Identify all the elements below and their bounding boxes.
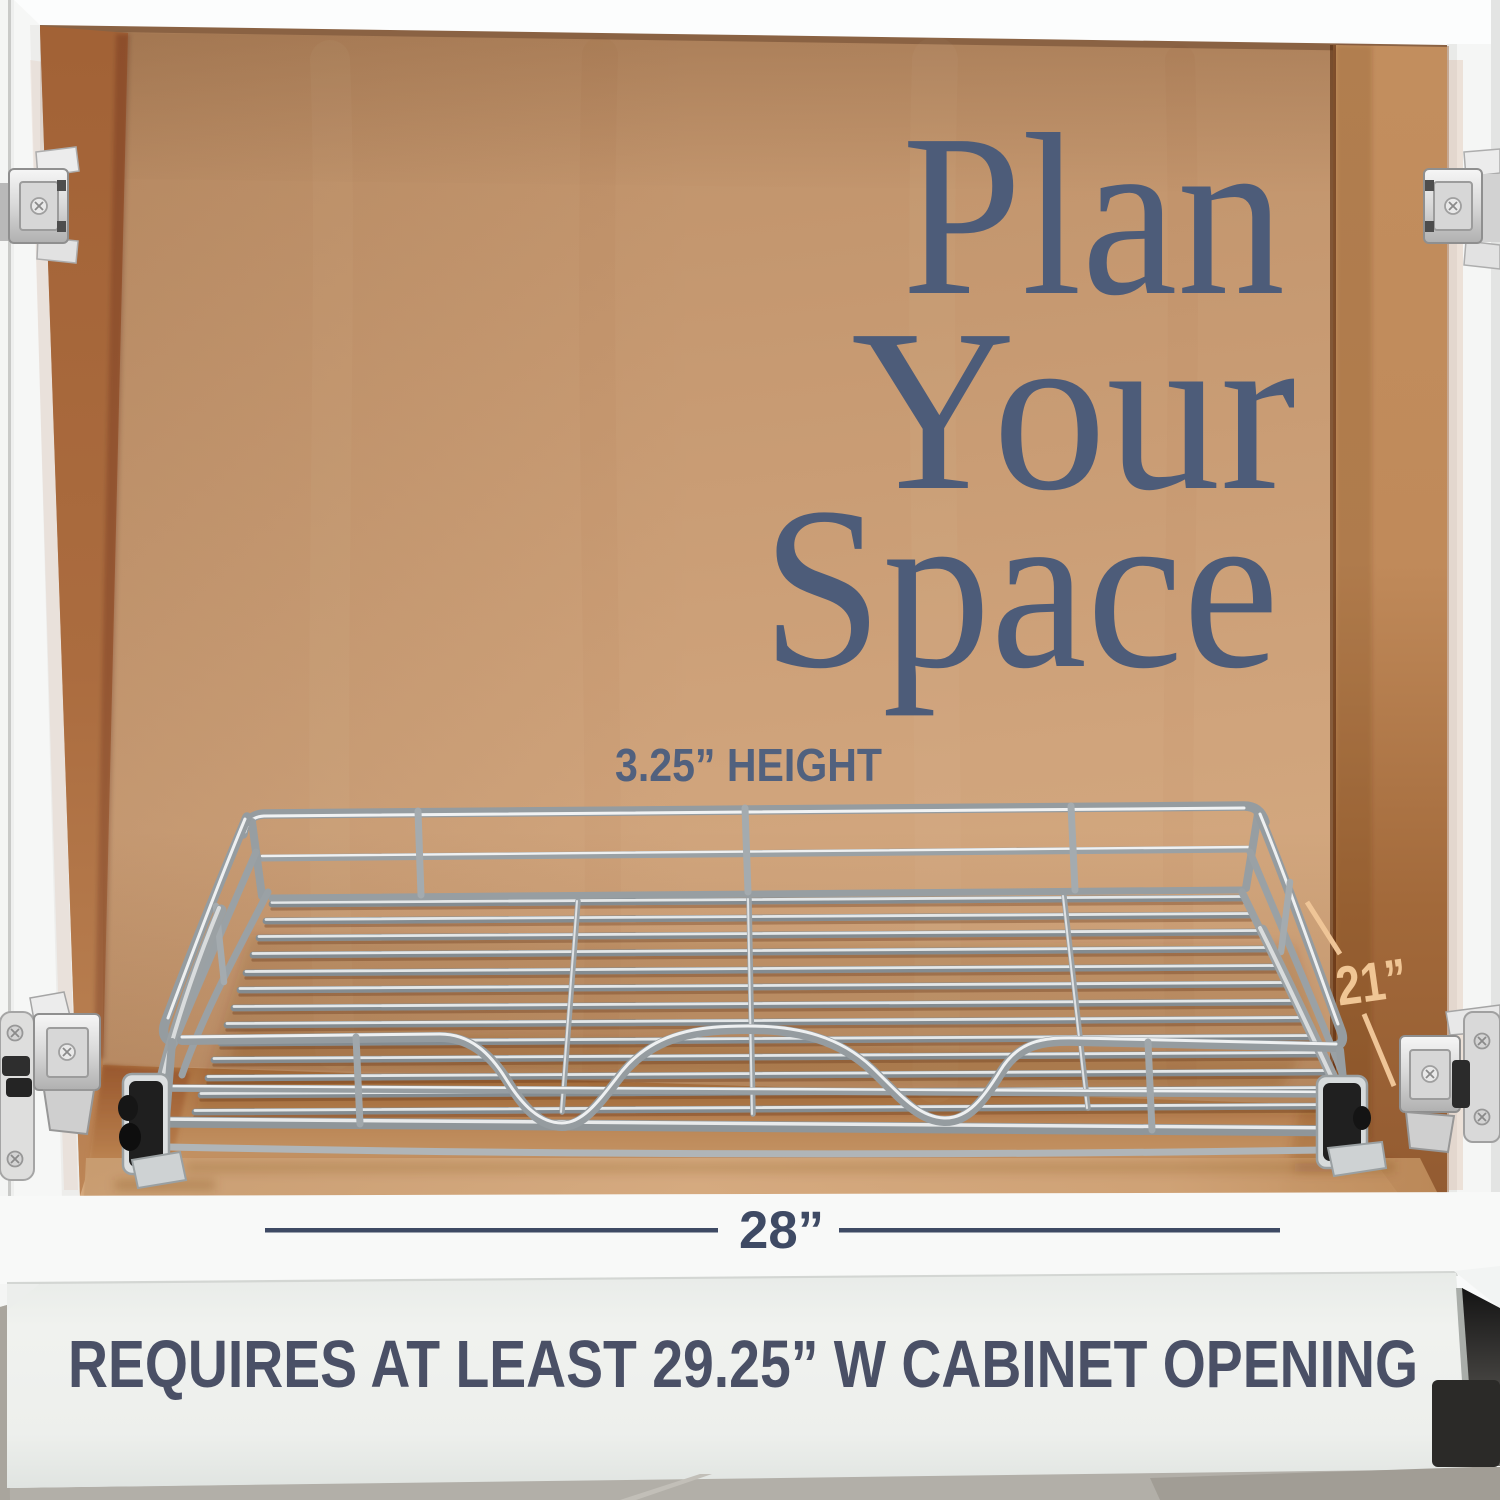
svg-text:3.25” HEIGHT: 3.25” HEIGHT: [615, 739, 882, 791]
svg-text:Space: Space: [762, 460, 1279, 717]
svg-text:28”: 28”: [739, 1201, 824, 1260]
svg-text:21”: 21”: [1332, 946, 1411, 1017]
svg-text:REQUIRES AT LEAST 29.25” W CAB: REQUIRES AT LEAST 29.25” W CABINET OPENI…: [68, 1327, 1418, 1402]
